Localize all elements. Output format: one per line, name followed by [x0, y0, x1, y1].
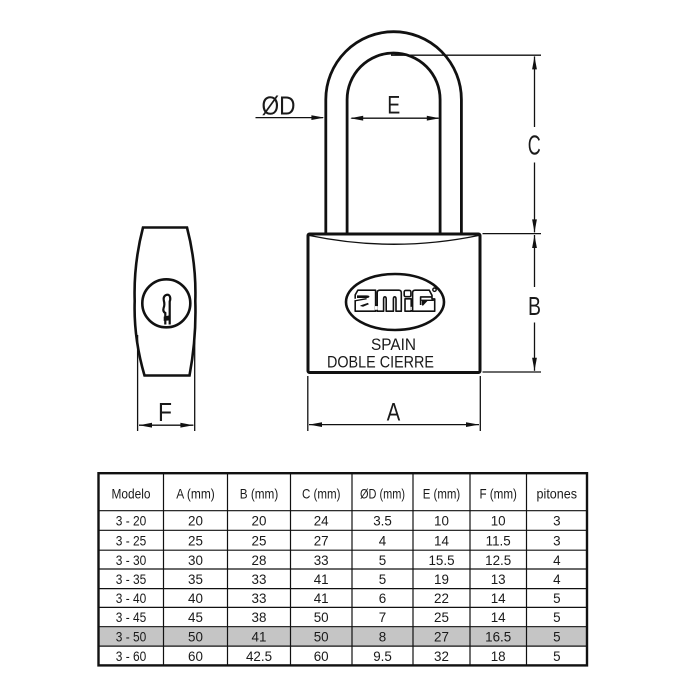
- svg-text:E: E: [387, 91, 400, 119]
- svg-text:41: 41: [252, 630, 267, 645]
- svg-text:C: C: [528, 130, 541, 161]
- svg-text:C (mm): C (mm): [302, 487, 341, 502]
- svg-text:3 - 20: 3 - 20: [116, 514, 147, 529]
- svg-text:41: 41: [314, 572, 329, 587]
- svg-text:14: 14: [491, 591, 506, 606]
- svg-text:ØD (mm): ØD (mm): [360, 487, 405, 502]
- svg-text:10: 10: [491, 514, 506, 529]
- svg-text:9.5: 9.5: [373, 649, 392, 664]
- svg-text:25: 25: [434, 610, 449, 625]
- svg-text:60: 60: [188, 649, 203, 664]
- svg-text:25: 25: [252, 534, 267, 549]
- svg-text:6: 6: [379, 591, 386, 606]
- svg-text:8: 8: [379, 630, 386, 645]
- svg-text:18: 18: [491, 649, 506, 664]
- svg-text:5: 5: [553, 649, 560, 664]
- svg-text:24: 24: [314, 514, 329, 529]
- svg-text:45: 45: [188, 610, 203, 625]
- svg-text:33: 33: [252, 591, 267, 606]
- svg-text:5: 5: [553, 591, 560, 606]
- svg-text:ØD: ØD: [262, 90, 296, 120]
- svg-text:50: 50: [314, 630, 329, 645]
- svg-text:4: 4: [553, 553, 561, 568]
- svg-text:60: 60: [314, 649, 329, 664]
- svg-text:42.5: 42.5: [246, 649, 272, 664]
- svg-text:38: 38: [252, 610, 267, 625]
- svg-text:22: 22: [434, 591, 449, 606]
- svg-text:19: 19: [434, 572, 449, 587]
- svg-text:4: 4: [379, 534, 387, 549]
- svg-text:50: 50: [188, 630, 203, 645]
- svg-text:3 - 30: 3 - 30: [116, 553, 147, 568]
- svg-text:27: 27: [314, 534, 329, 549]
- svg-text:35: 35: [188, 572, 203, 587]
- svg-text:3: 3: [553, 534, 560, 549]
- svg-text:5: 5: [553, 630, 560, 645]
- svg-text:40: 40: [188, 591, 203, 606]
- svg-text:14: 14: [434, 534, 449, 549]
- svg-text:32: 32: [434, 649, 449, 664]
- svg-text:13: 13: [491, 572, 506, 587]
- svg-text:25: 25: [188, 534, 203, 549]
- svg-text:14: 14: [491, 610, 506, 625]
- svg-text:20: 20: [252, 514, 267, 529]
- svg-text:DOBLE CIERRE: DOBLE CIERRE: [327, 354, 434, 372]
- svg-text:4: 4: [553, 572, 561, 587]
- svg-text:3 - 45: 3 - 45: [116, 610, 147, 625]
- svg-text:B: B: [528, 291, 541, 321]
- svg-text:A: A: [387, 398, 401, 426]
- svg-text:11.5: 11.5: [486, 534, 511, 549]
- svg-text:F (mm): F (mm): [479, 487, 517, 502]
- svg-text:E (mm): E (mm): [423, 487, 461, 502]
- svg-text:3 - 40: 3 - 40: [116, 591, 147, 606]
- svg-text:5: 5: [379, 553, 386, 568]
- svg-text:5: 5: [553, 610, 560, 625]
- svg-text:15.5: 15.5: [428, 553, 454, 568]
- svg-text:SPAIN: SPAIN: [371, 336, 416, 354]
- svg-text:5: 5: [379, 572, 386, 587]
- svg-text:pitones: pitones: [537, 487, 578, 502]
- svg-text:3 - 25: 3 - 25: [116, 534, 147, 549]
- svg-text:27: 27: [434, 630, 449, 645]
- svg-text:16.5: 16.5: [485, 630, 511, 645]
- svg-text:33: 33: [314, 553, 329, 568]
- svg-text:3: 3: [553, 514, 560, 529]
- svg-text:50: 50: [314, 610, 329, 625]
- svg-text:28: 28: [252, 553, 267, 568]
- svg-text:30: 30: [188, 553, 203, 568]
- svg-text:3 - 50: 3 - 50: [116, 630, 147, 645]
- svg-text:3.5: 3.5: [373, 514, 392, 529]
- svg-text:3 - 60: 3 - 60: [116, 649, 147, 664]
- svg-text:Modelo: Modelo: [112, 487, 151, 502]
- svg-text:3 - 35: 3 - 35: [116, 572, 147, 587]
- svg-text:A (mm): A (mm): [176, 487, 215, 502]
- svg-text:F: F: [158, 397, 172, 427]
- svg-text:20: 20: [188, 514, 203, 529]
- svg-text:10: 10: [434, 514, 449, 529]
- svg-text:41: 41: [314, 591, 329, 606]
- svg-text:33: 33: [252, 572, 267, 587]
- svg-text:7: 7: [379, 610, 386, 625]
- svg-text:B (mm): B (mm): [240, 487, 279, 502]
- svg-text:12.5: 12.5: [485, 553, 511, 568]
